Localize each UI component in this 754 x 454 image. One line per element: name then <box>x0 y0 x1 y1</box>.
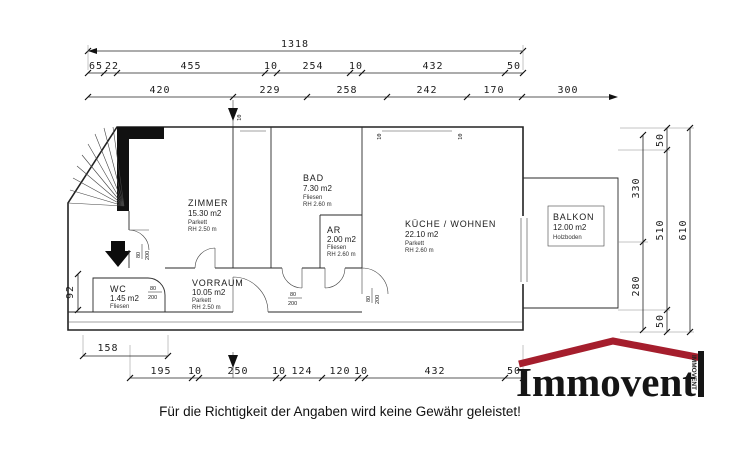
room-area: 1.45 m2 <box>110 294 139 303</box>
room-name: VORRAUM <box>192 278 244 288</box>
room-zimmer: ZIMMER 15.30 m2 Parkett RH 2.50 m <box>188 198 228 233</box>
dim-label: 420 <box>149 85 170 96</box>
wall-mark: 10 <box>377 133 383 140</box>
room-floor: Parkett <box>192 298 211 304</box>
logo-chimney-bar <box>698 351 704 397</box>
dim-label: 242 <box>416 85 437 96</box>
room-vorraum: VORRAUM 10.05 m2 Parkett RH 2.50 m <box>192 278 244 311</box>
room-ar: AR 2.00 m2 Fliesen RH 2.60 m <box>327 225 356 258</box>
door-size-label: 80 <box>136 252 142 258</box>
dim-label: 300 <box>557 85 578 96</box>
room-name: ZIMMER <box>188 198 228 208</box>
dim-label: 280 <box>631 275 642 296</box>
dim-label: 10 <box>354 366 368 377</box>
dim-label: 158 <box>97 343 118 354</box>
dim-label: 65 <box>89 61 103 72</box>
door-size-label: 200 <box>288 301 297 307</box>
dim-label: 50 <box>507 61 521 72</box>
room-area: 7.30 m2 <box>303 184 332 193</box>
room-floor: Fliesen <box>303 195 322 201</box>
section-marker-top <box>228 100 238 127</box>
dim-label: 258 <box>336 85 357 96</box>
room-floor: Parkett <box>188 220 207 226</box>
door-size-label: 200 <box>148 295 157 301</box>
room-height: RH 2.50 m <box>192 305 221 311</box>
door-size-label: 80 <box>290 292 296 298</box>
door-size-label: 200 <box>375 295 381 304</box>
floorplan-page: 1318 65 22 455 10 254 10 432 50 420 229 … <box>0 0 754 454</box>
dim-label: 254 <box>302 61 323 72</box>
dim-label: 432 <box>424 366 445 377</box>
logo-chimney-text: IMMOVENT <box>690 355 697 390</box>
dim-label: 510 <box>655 219 666 240</box>
room-name: BALKON <box>553 212 594 222</box>
stair-direction-arrow-icon <box>105 241 131 267</box>
dim-chain-bottom: 158 195 10 250 10 124 120 10 432 50 <box>80 335 526 381</box>
dim-label: 432 <box>422 61 443 72</box>
dim-label: 22 <box>105 61 119 72</box>
room-name: AR <box>327 225 341 235</box>
door-size-label: 80 <box>366 296 372 302</box>
dim-chain-right: 330 280 50 510 50 610 <box>618 125 694 335</box>
dim-total: 1318 <box>281 39 309 50</box>
dim-label: 250 <box>227 366 248 377</box>
wall-mark: 10 <box>237 114 243 121</box>
dim-label: 455 <box>180 61 201 72</box>
dim-chain-top: 1318 65 22 455 10 254 10 432 50 420 229 … <box>85 39 618 100</box>
room-area: 12.00 m2 <box>553 223 587 232</box>
logo-immovent: Immovent IMMOVENT <box>516 341 704 405</box>
room-wc: WC 1.45 m2 Fliesen <box>110 284 139 310</box>
dim-arrow-right-icon <box>609 94 618 100</box>
room-floor: Fliesen <box>327 245 346 251</box>
dim-label: 50 <box>655 314 666 328</box>
dim-label: 50 <box>655 133 666 147</box>
dim-label: 170 <box>483 85 504 96</box>
dim-label: 124 <box>291 366 312 377</box>
room-area: 10.05 m2 <box>192 288 226 297</box>
dim-label: 229 <box>259 85 280 96</box>
dim-label: 610 <box>678 219 689 240</box>
room-area: 15.30 m2 <box>188 209 222 218</box>
room-height: RH 2.60 m <box>303 202 332 208</box>
room-balkon: BALKON 12.00 m2 Holzboden <box>553 212 594 241</box>
room-floor: Holzboden <box>553 235 582 241</box>
room-name: WC <box>110 284 127 294</box>
room-bad: BAD 7.30 m2 Fliesen RH 2.60 m <box>303 173 332 208</box>
room-height: RH 2.60 m <box>405 248 434 254</box>
dim-label: 10 <box>349 61 363 72</box>
dim-label: 120 <box>329 366 350 377</box>
door-size-label: 80 <box>150 286 156 292</box>
room-floor: Fliesen <box>110 304 129 310</box>
dim-label: 330 <box>631 177 642 198</box>
logo-brand: Immovent <box>516 359 696 405</box>
room-height: RH 2.60 m <box>327 252 356 258</box>
room-kueche: KÜCHE / WOHNEN 22.10 m2 Parkett RH 2.60 … <box>405 219 496 254</box>
dim-label: 195 <box>150 366 171 377</box>
dim-label: 10 <box>272 366 286 377</box>
dim-label: 10 <box>264 61 278 72</box>
door-size-label: 200 <box>145 251 151 260</box>
room-name: KÜCHE / WOHNEN <box>405 219 496 229</box>
dim-label: 92 <box>65 285 76 299</box>
room-floor: Parkett <box>405 241 424 247</box>
room-area: 22.10 m2 <box>405 230 439 239</box>
room-name: BAD <box>303 173 324 183</box>
wall-mark: 10 <box>458 133 464 140</box>
floorplan-drawing: 1318 65 22 455 10 254 10 432 50 420 229 … <box>0 0 754 454</box>
room-area: 2.00 m2 <box>327 235 356 244</box>
balcony <box>520 178 618 308</box>
room-height: RH 2.50 m <box>188 227 217 233</box>
disclaimer-text: Für die Richtigkeit der Angaben wird kei… <box>159 404 521 419</box>
dim-label: 10 <box>188 366 202 377</box>
